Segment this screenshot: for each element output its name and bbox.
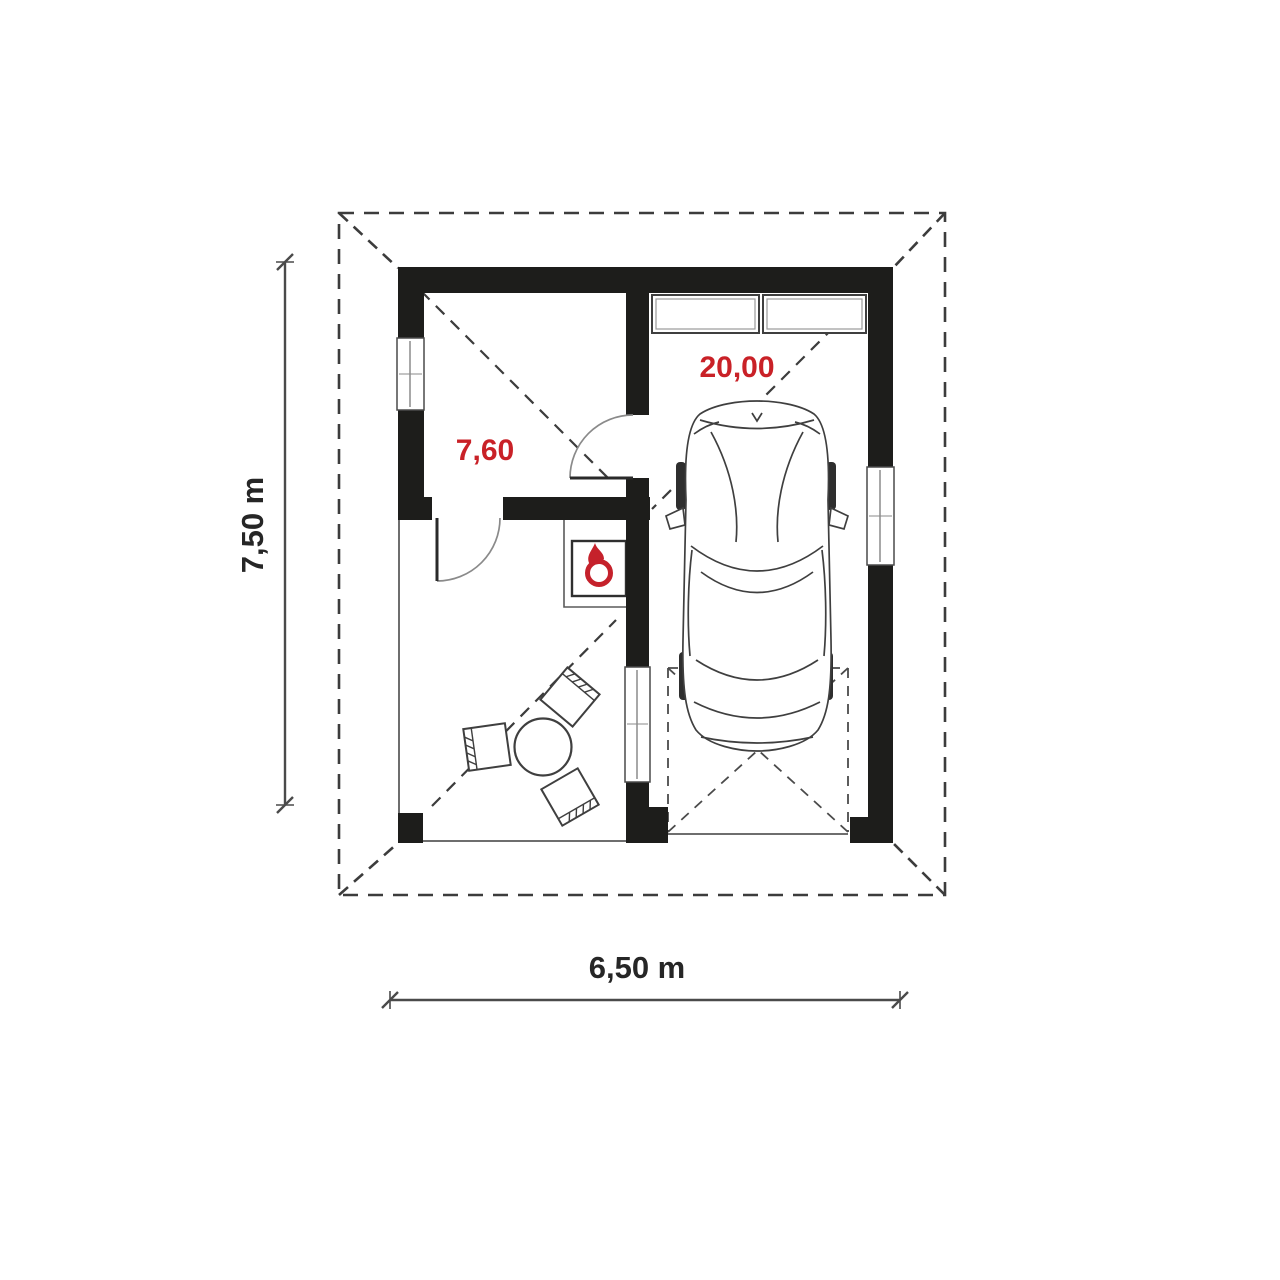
car-mirror-left (666, 508, 685, 529)
eaves-corner-line (339, 843, 398, 895)
car-body (683, 401, 831, 751)
wall-room-bottom-left-stub (398, 497, 432, 520)
car-top-view (666, 401, 848, 751)
chair (540, 667, 599, 726)
room-door-swing-arc (570, 415, 633, 478)
eaves-corner-line (893, 213, 945, 268)
wall-center-upper (626, 293, 649, 415)
dimension-label-horizontal: 6,50 m (589, 950, 686, 985)
chair (463, 723, 510, 770)
eaves-corner-line (339, 213, 398, 268)
eaves-corner-line (893, 843, 945, 895)
pillar-garage-door-left (626, 807, 668, 843)
dimension-horizontal (382, 991, 908, 1009)
wall-left-upper (398, 267, 424, 340)
floor-plan-canvas: 7,60 20,00 7,50 m 6,50 m (0, 0, 1280, 1280)
window-room-left (397, 338, 424, 410)
terrace-door-swing-arc (437, 518, 500, 581)
boiler-unit (572, 541, 626, 596)
shelf-unit (763, 295, 866, 333)
wall-center-hinge-block (626, 478, 649, 520)
garage-shelves (652, 295, 866, 333)
car-mirror-right (829, 508, 848, 529)
dimension-label-vertical: 7,50 m (235, 477, 270, 574)
car-tire (676, 462, 686, 510)
window-garage-right (867, 467, 894, 565)
round-table (515, 719, 572, 776)
wall-center-lower (626, 520, 649, 667)
hip-line (421, 291, 610, 480)
terrace-furniture (463, 667, 599, 825)
boiler-niche (564, 520, 627, 607)
room-area-label: 7,60 (456, 434, 514, 467)
dimension-vertical (276, 254, 294, 813)
chair (541, 768, 598, 825)
wall-right-upper (868, 267, 893, 467)
shelf-unit (652, 295, 759, 333)
wall-left-lower (398, 410, 424, 497)
wall-right-lower (868, 565, 893, 817)
terrace-door (437, 518, 500, 581)
room-door (570, 415, 633, 478)
window-terrace-garage (625, 667, 650, 782)
wall-top (398, 267, 893, 293)
floor-plan-drawing: 7,60 20,00 7,50 m 6,50 m (0, 0, 1280, 1280)
hip-line (432, 620, 616, 806)
pillar-garage-door-right (850, 817, 893, 843)
garage-area-label: 20,00 (699, 351, 774, 384)
pillar-terrace-corner (398, 813, 423, 843)
